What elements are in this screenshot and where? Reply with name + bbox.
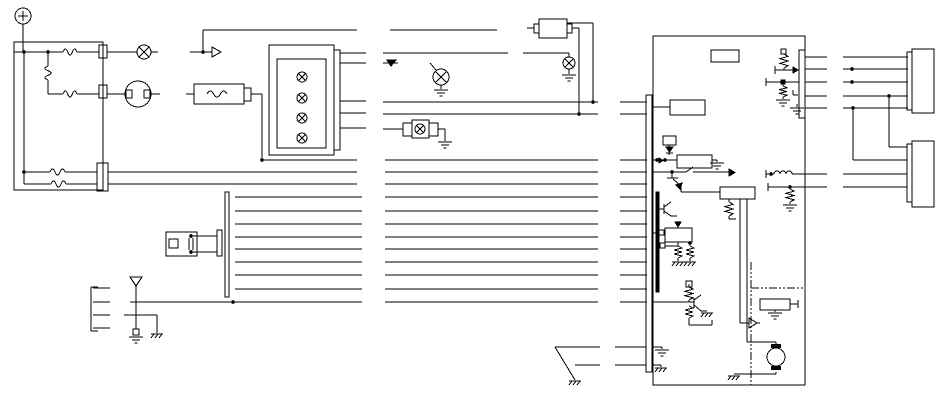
- junction-dot: [850, 80, 854, 84]
- ground-earth: [790, 108, 804, 114]
- junction-dot: [22, 170, 26, 174]
- connector-a: [912, 49, 934, 113]
- terminal: [781, 49, 786, 54]
- ground-chassis: [655, 368, 667, 372]
- resistor: [780, 54, 788, 68]
- fuse-holder: [194, 84, 244, 104]
- ground-earth: [438, 142, 452, 148]
- connector-arrow: [212, 47, 221, 57]
- sensor-inner: [169, 239, 178, 248]
- resistor: [674, 246, 682, 258]
- pilot-lamp: [565, 59, 574, 68]
- wire: [689, 318, 712, 325]
- junction-dot: [189, 234, 193, 238]
- connector-b: [912, 141, 934, 207]
- resistor: [686, 246, 694, 258]
- inductor: [774, 171, 792, 174]
- antenna: [130, 277, 142, 286]
- fuse: [63, 49, 77, 55]
- wiring-diagram: [0, 0, 950, 407]
- transistor: [694, 295, 707, 311]
- wire: [555, 347, 646, 380]
- diode: [793, 67, 798, 73]
- junction-dot: [851, 106, 855, 110]
- cu-bus-bar: [656, 192, 659, 292]
- fuse: [50, 169, 65, 175]
- cluster-lamp: [298, 94, 305, 101]
- wire: [124, 315, 157, 333]
- wire: [383, 53, 569, 57]
- cu-input-box: [670, 100, 705, 115]
- motor-terminal: [534, 24, 539, 33]
- capacitor: [189, 238, 193, 250]
- cu-relay: [677, 155, 712, 168]
- pump-motor: [767, 348, 785, 366]
- cu-label-box: [711, 50, 739, 62]
- wire-arrow: [729, 169, 735, 176]
- cluster-lamp: [298, 114, 305, 121]
- wire: [390, 28, 534, 30]
- junction-dot: [663, 158, 667, 162]
- junction-dot: [22, 50, 26, 54]
- connector-b-bar: [907, 144, 912, 202]
- splice-bracket: [91, 287, 98, 331]
- junction-square: [781, 80, 785, 84]
- transistor: [667, 172, 681, 192]
- cluster-connector-bar: [334, 50, 340, 150]
- cu-small-box: [663, 136, 676, 145]
- harness-wires: [235, 197, 647, 289]
- junction-dot: [189, 250, 193, 254]
- connector-a-bar: [907, 52, 912, 110]
- wire: [665, 242, 690, 261]
- wire: [93, 288, 110, 328]
- junction-dot: [231, 300, 235, 304]
- control-unit-connector-bar: [646, 95, 652, 372]
- wire: [107, 30, 357, 52]
- main-feed-wires: [108, 160, 647, 184]
- cu-logic-box: [665, 228, 692, 242]
- battery: [18, 11, 28, 21]
- junction-dot: [769, 172, 773, 176]
- horn-connector: [125, 81, 151, 107]
- ground-chassis: [684, 262, 696, 266]
- junction-dot: [788, 185, 792, 189]
- junction-dot: [201, 50, 205, 54]
- diagram-page: [0, 0, 950, 407]
- cluster-lamp: [298, 73, 305, 80]
- wire: [191, 236, 217, 252]
- wire: [383, 102, 647, 114]
- resistor: [685, 306, 693, 318]
- cu-driver-box: [720, 187, 755, 199]
- ground-chassis: [728, 376, 740, 380]
- heater-motor: [539, 19, 567, 38]
- buffer-symbol: [749, 318, 757, 328]
- wire: [734, 342, 776, 374]
- fuse-holder-cap: [244, 88, 251, 101]
- ground-chassis: [701, 313, 713, 317]
- junction-dot: [46, 50, 50, 54]
- wire: [430, 63, 436, 70]
- ground-earth: [434, 90, 448, 96]
- fuse: [51, 181, 66, 187]
- junction-dot: [850, 67, 854, 71]
- ground-earth: [783, 205, 797, 211]
- ground-chassis: [151, 334, 163, 338]
- harness-connector-bar: [225, 192, 229, 297]
- resistor: [685, 287, 693, 300]
- wire: [740, 199, 747, 342]
- ground-earth: [562, 75, 576, 81]
- terminal: [660, 243, 665, 248]
- junction-dot: [688, 241, 692, 245]
- dome-lamp: [435, 71, 446, 82]
- ground-earth: [655, 350, 669, 356]
- ground-terminal: [133, 329, 139, 335]
- ground-earth: [776, 100, 790, 106]
- terminal: [659, 230, 664, 235]
- fuse-box: [14, 42, 103, 190]
- fuse: [207, 91, 227, 97]
- resistor: [786, 189, 794, 202]
- connector-feed-wires: [805, 57, 908, 187]
- ground-chassis: [672, 262, 684, 266]
- diode: [675, 222, 681, 227]
- cluster-wires: [340, 53, 366, 128]
- ground-chassis: [569, 381, 581, 385]
- junction-dot: [655, 158, 659, 162]
- resistor: [725, 202, 733, 216]
- wire: [383, 129, 445, 141]
- ground-earth: [129, 337, 143, 343]
- bulb-holder-cap: [403, 123, 412, 136]
- resistor: [779, 86, 787, 97]
- horn-connector: [144, 90, 150, 98]
- fuse-box-wiring: [14, 52, 99, 184]
- holder-bulb: [416, 125, 423, 132]
- fuse: [63, 91, 77, 97]
- motor-terminal: [567, 24, 572, 33]
- connector-plug: [217, 230, 222, 256]
- junction-dot: [887, 94, 891, 98]
- indicator-lamp: [139, 47, 149, 57]
- wire-arrow: [659, 158, 663, 163]
- junction-dot: [260, 158, 264, 162]
- diode: [666, 147, 673, 152]
- ground-earth: [768, 313, 782, 319]
- horn-connector: [126, 90, 132, 98]
- cu-module-box: [760, 299, 790, 310]
- pump-motor: [771, 366, 781, 370]
- cluster-lamp: [298, 134, 305, 141]
- bulb-holder-cap: [429, 123, 438, 136]
- transistor: [659, 202, 677, 216]
- fuse: [45, 66, 51, 80]
